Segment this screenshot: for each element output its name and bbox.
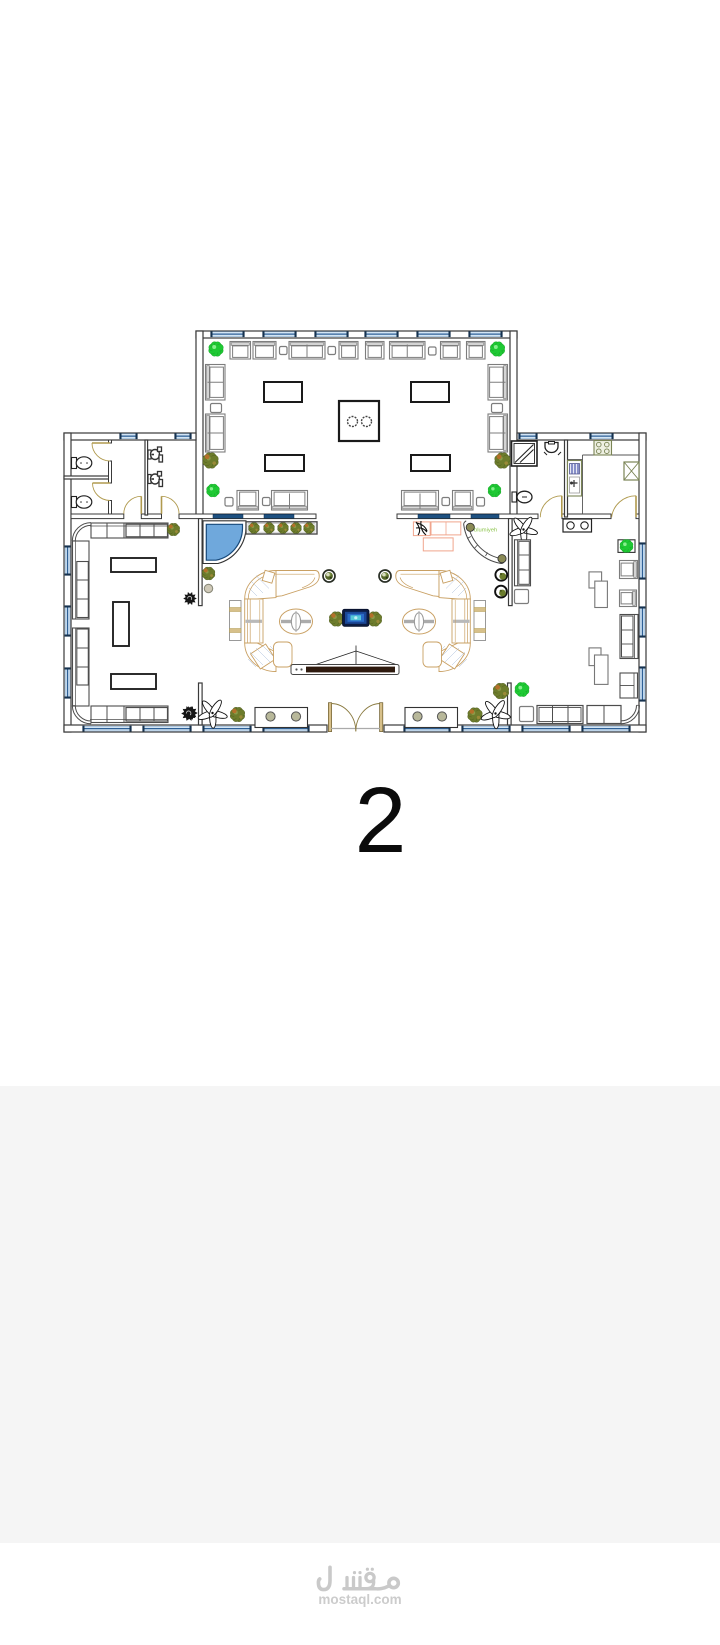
svg-text:blumiyeh: blumiyeh	[474, 528, 497, 534]
svg-text:mostaql.com: mostaql.com	[318, 1592, 401, 1607]
svg-text:2: 2	[355, 768, 407, 872]
